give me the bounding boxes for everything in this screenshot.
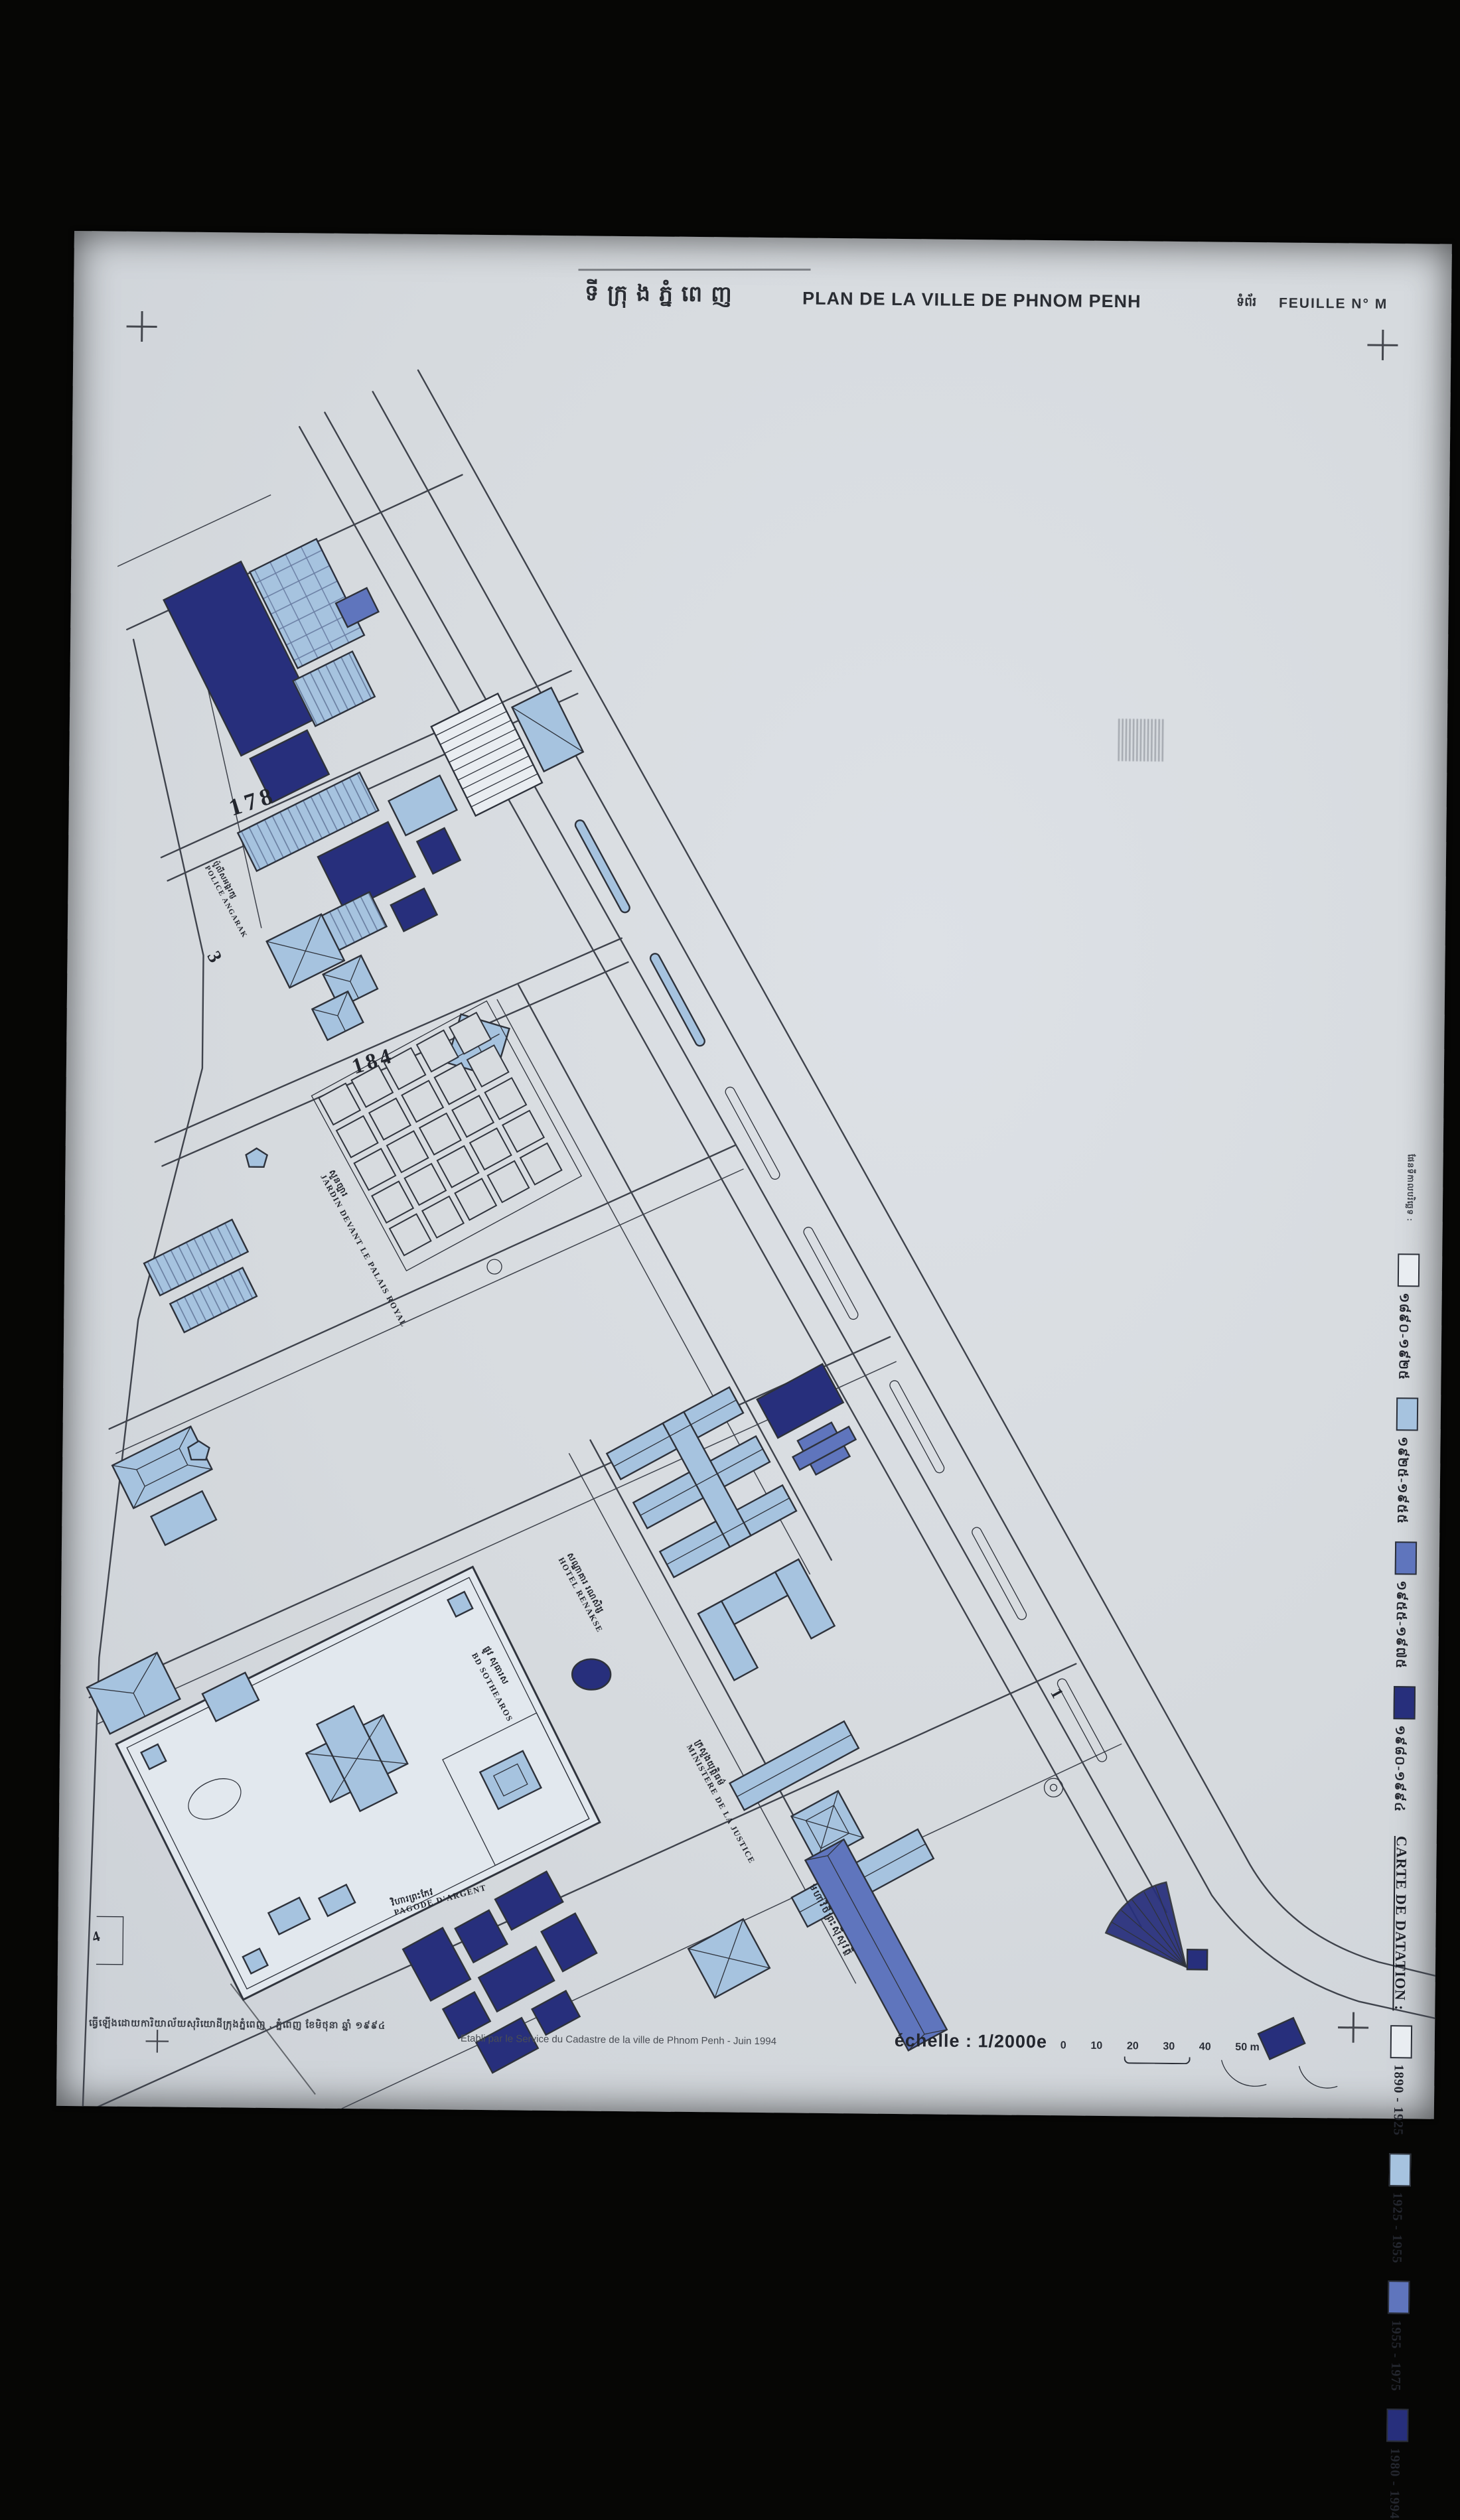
scale-ticks: 0 10 20 30 40 50 m — [1060, 2040, 1260, 2054]
scale-tick-20: 20 — [1127, 2040, 1139, 2052]
riverside-small-navy — [1258, 2018, 1305, 2059]
fan-building — [1106, 1882, 1208, 1969]
legend-range-khmer-1890: ១៨៩០-១៩២៥ — [1392, 1293, 1413, 1380]
riverside-bars — [607, 1343, 878, 1577]
legend-swatch-1925-khmer — [1396, 1397, 1418, 1431]
legend-item-1980: 1980 - 1994 — [1386, 2409, 1409, 2519]
legend-title-khmer: ផែនទីកាលបរិច្ឆេទ : — [1402, 1154, 1415, 1253]
legend-range-1980: 1980 - 1994 — [1386, 2448, 1402, 2519]
crescent-road-2 — [1299, 2066, 1337, 2088]
legend-item-1890: 1890 - 1925 — [1390, 2025, 1413, 2136]
legend-swatch-1890-khmer — [1398, 1253, 1420, 1287]
legend-range-khmer-1925: ១៩២៥-១៩៥៥ — [1391, 1436, 1412, 1524]
slide-photo: { "header": { "title_khmer": "ទីក្រុងភ្ន… — [0, 0, 1460, 2168]
legend-range-khmer-1980: ១៩៨០-១៩៩៤ — [1388, 1725, 1409, 1812]
scale-tick-10: 10 — [1090, 2040, 1102, 2052]
hatched-block — [431, 671, 587, 815]
round-building — [572, 1659, 611, 1690]
school-rows — [144, 1220, 267, 1334]
legend-item-1925: 1925 - 1955 — [1388, 2153, 1412, 2264]
scale-tick-30: 30 — [1163, 2041, 1175, 2053]
legend-item-khmer-1955: ១៩៥៥-១៩៧៥ — [1390, 1541, 1417, 1669]
legend-swatch-1955 — [1388, 2281, 1410, 2314]
scale-tick-40: 40 — [1199, 2041, 1211, 2053]
pyramid-roof-building — [688, 1919, 770, 1998]
legend-item-1955: 1955 - 1975 — [1387, 2281, 1410, 2392]
scale-bracket — [1124, 2056, 1191, 2064]
tree-symbol — [246, 1149, 267, 1167]
legend-range-1890: 1890 - 1925 — [1390, 2064, 1406, 2136]
scale-bar: 0 10 20 30 40 50 m — [1060, 2040, 1260, 2068]
map-sheet: ទីក្រុងភ្នំពេញ PLAN DE LA VILLE DE PHNOM… — [56, 231, 1452, 2119]
scale-tick-0: 0 — [1060, 2040, 1066, 2052]
scale-tick-50: 50 m — [1235, 2042, 1260, 2054]
legend-swatch-1925 — [1389, 2153, 1411, 2186]
legend-range-khmer-1955: ១៩៥៥-១៩៧៥ — [1390, 1580, 1410, 1669]
legend-title: CARTE DE DATATION : — [1391, 1836, 1410, 2011]
legend-item-khmer-1890: ១៨៩០-១៩២៥ — [1392, 1253, 1420, 1380]
northwest-building-complex — [164, 517, 434, 805]
legend-swatch-1955-khmer — [1395, 1541, 1417, 1575]
legend-range-1925: 1925 - 1955 — [1389, 2192, 1405, 2264]
double-circle — [1044, 1778, 1062, 1797]
legend-swatch-1980-khmer — [1394, 1686, 1416, 1719]
legend-item-khmer-1980: ១៩៨០-១៩៩៤ — [1388, 1686, 1416, 1812]
roundpoint — [487, 1259, 502, 1274]
legend-carte-de-datation: ផែនទីកាលបរិច្ឆេទ : ១៨៩០-១៩២៥ ១៩២៥-១៩៥៥ ១… — [1372, 1154, 1421, 1996]
scale-label: échelle : 1/2000e — [895, 2030, 1047, 2052]
hotel-renakse-building — [698, 1559, 835, 1680]
legend-swatch-1890 — [1390, 2025, 1412, 2058]
west-buildings — [112, 1427, 233, 1551]
legend-item-khmer-1925: ១៩២៥-១៩៥៥ — [1391, 1397, 1418, 1524]
royal-palace-compound — [113, 1561, 600, 2000]
legend-range-1955: 1955 - 1975 — [1388, 2320, 1404, 2392]
quay-median-strips — [565, 819, 1118, 1764]
legend-swatch-1980 — [1386, 2409, 1408, 2442]
